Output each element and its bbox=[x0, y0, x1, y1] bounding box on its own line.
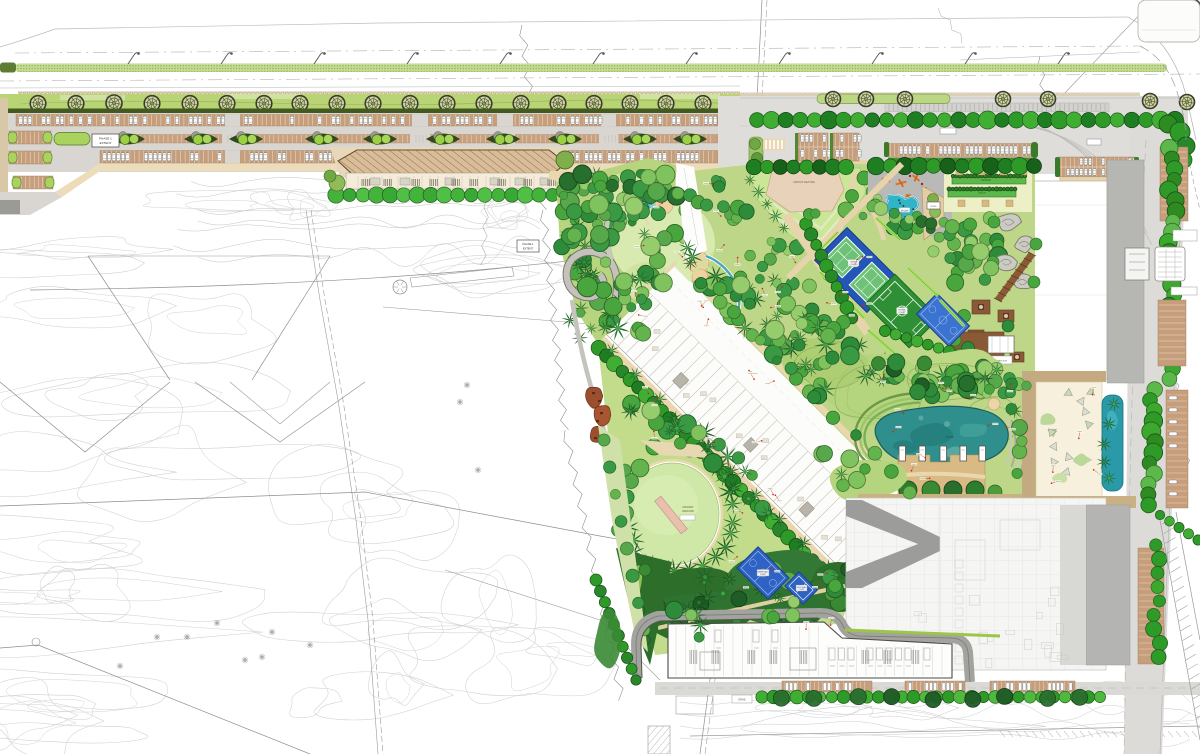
svg-text:PHASE 1: PHASE 1 bbox=[99, 137, 112, 141]
svg-text:COURT: COURT bbox=[899, 312, 907, 314]
svg-text:PHASE 1: PHASE 1 bbox=[523, 242, 535, 246]
svg-text:EXTENT: EXTENT bbox=[523, 247, 534, 251]
svg-text:DRIVE: DRIVE bbox=[738, 699, 746, 702]
svg-text:CRICKET: CRICKET bbox=[981, 179, 992, 182]
svg-text:PITCH: PITCH bbox=[978, 192, 985, 195]
svg-text:COURT: COURT bbox=[799, 589, 805, 591]
svg-text:GROUND: GROUND bbox=[682, 509, 694, 513]
svg-text:COURT: COURT bbox=[760, 574, 766, 576]
svg-text:POND: POND bbox=[946, 435, 954, 439]
svg-text:SPLASH: SPLASH bbox=[901, 210, 909, 213]
svg-text:KIOSK: KIOSK bbox=[930, 206, 937, 208]
svg-text:EXTENT: EXTENT bbox=[100, 141, 112, 145]
svg-text:AMPHITHEATRE: AMPHITHEATRE bbox=[793, 180, 815, 184]
svg-text:CRICKET: CRICKET bbox=[682, 505, 694, 509]
